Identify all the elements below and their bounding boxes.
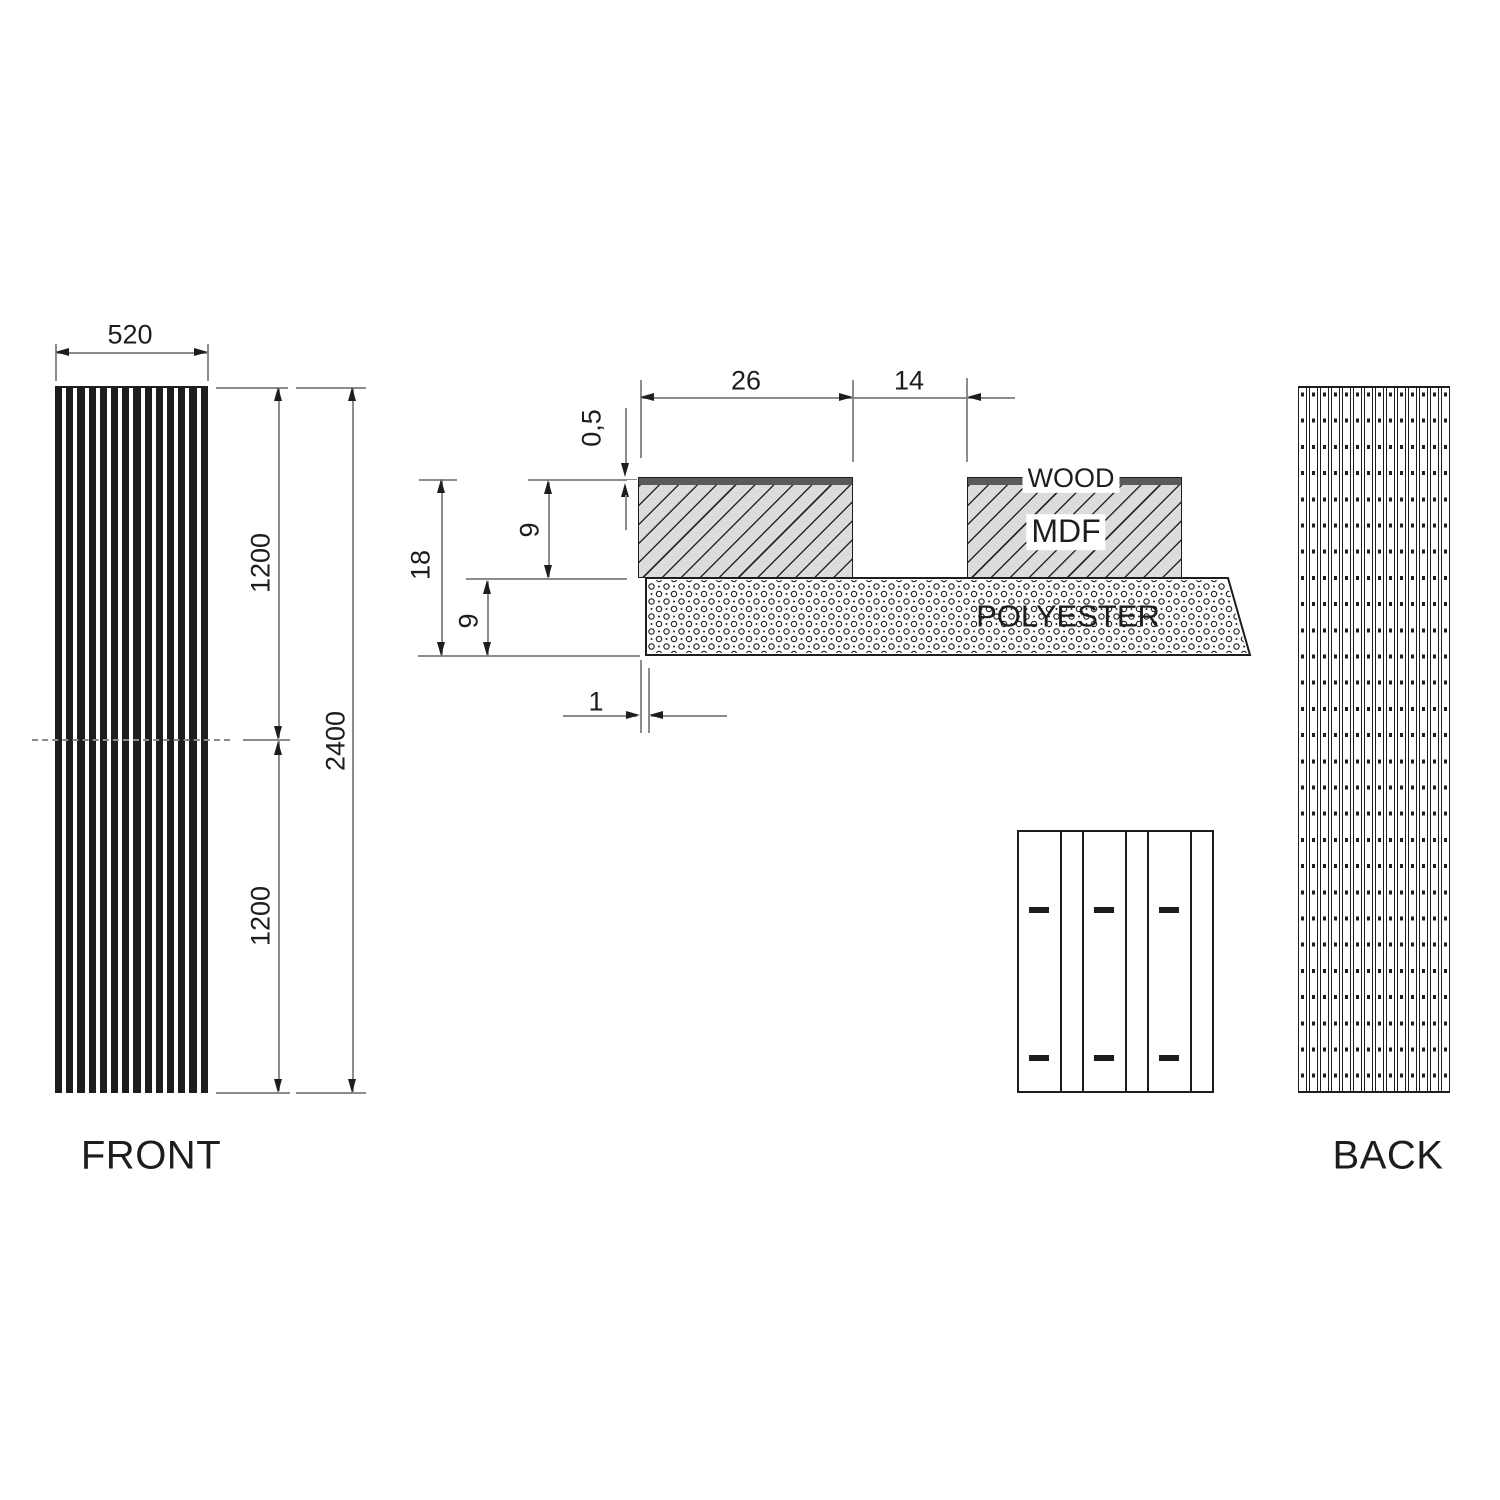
panel-joint-centerline: [32, 739, 230, 741]
detail-groove: [1062, 832, 1084, 1091]
back-slat: [1430, 388, 1439, 1091]
mounting-slot: [1159, 1055, 1179, 1061]
dim-value-slot-width: 14: [894, 366, 924, 397]
dim-arrow: [55, 348, 69, 356]
back-slat: [1419, 388, 1428, 1091]
dim-value-veneer-thickness: 0,5: [577, 409, 608, 447]
mdf-hatch: [639, 485, 852, 577]
ext-line: [966, 378, 968, 462]
mounting-slot: [1094, 1055, 1114, 1061]
wood-veneer: [639, 478, 852, 485]
detail-slat: [1084, 832, 1127, 1091]
dim-arrow: [621, 463, 629, 477]
ext-line: [243, 739, 290, 741]
detail-slat: [1149, 832, 1192, 1091]
dim-line-total-thickness: [441, 481, 443, 655]
polyester-material-label: POLYESTER: [971, 600, 1165, 635]
dim-arrow: [274, 1079, 282, 1093]
back-slat: [1386, 388, 1395, 1091]
ext-line: [556, 479, 637, 480]
dim-line-width: [55, 352, 208, 354]
dim-value-width: 520: [107, 320, 152, 351]
dim-value-lower-segment: 1200: [246, 886, 277, 946]
dim-arrow: [483, 580, 491, 594]
back-slat: [1320, 388, 1329, 1091]
detail-groove: [1192, 832, 1212, 1091]
mdf-material-label: MDF: [1026, 514, 1105, 550]
front-view-label: FRONT: [81, 1134, 221, 1179]
dim-line-slat-and-slot: [640, 397, 1015, 399]
mounting-slot: [1094, 907, 1114, 913]
dim-arrow: [649, 711, 663, 719]
dim-arrow: [194, 348, 208, 356]
dim-line-veneer-thickness: [625, 495, 627, 530]
dim-value-offset: 1: [588, 687, 603, 718]
wood-material-label: WOOD: [1023, 463, 1120, 493]
dim-arrow: [544, 480, 552, 494]
dim-line-total-height: [352, 389, 354, 1092]
back-slat: [1364, 388, 1373, 1091]
dim-arrow: [348, 1079, 356, 1093]
dim-arrow: [967, 393, 981, 401]
back-slat: [1353, 388, 1362, 1091]
mounting-slot: [1159, 907, 1179, 913]
dim-value-mdf-thickness: 9: [515, 522, 546, 537]
back-slat: [1298, 388, 1307, 1091]
mounting-slot: [1029, 1055, 1049, 1061]
back-slat: [1397, 388, 1406, 1091]
detail-groove: [1127, 832, 1149, 1091]
ext-line: [640, 660, 642, 733]
dim-line-mdf-thickness: [548, 482, 550, 577]
back-panel: [1298, 386, 1450, 1093]
dim-value-slat-width: 26: [731, 366, 761, 397]
back-slat: [1342, 388, 1351, 1091]
dim-arrow: [348, 387, 356, 401]
back-slat: [1331, 388, 1340, 1091]
dim-arrow: [274, 726, 282, 740]
dim-arrow: [626, 711, 640, 719]
dim-line-veneer-thickness: [625, 408, 627, 466]
dim-arrow: [483, 642, 491, 656]
back-slat: [1309, 388, 1318, 1091]
mounting-slot: [1029, 907, 1049, 913]
back-slat: [1408, 388, 1417, 1091]
dim-arrow: [274, 741, 282, 755]
ext-line: [640, 380, 642, 458]
ext-line: [648, 668, 650, 733]
detail-panel: [1017, 830, 1214, 1093]
dim-arrow: [437, 479, 445, 493]
technical-drawing-canvas: 520 1200 1200 2400 FRONT: [0, 0, 1500, 1500]
back-view-label: BACK: [1333, 1134, 1444, 1179]
dim-value-total-height: 2400: [321, 711, 352, 771]
dim-arrow: [640, 393, 654, 401]
ext-line: [418, 655, 640, 657]
dim-arrow: [839, 393, 853, 401]
dim-line-upper-segment: [278, 389, 280, 738]
dim-arrow: [274, 387, 282, 401]
dim-value-total-thickness: 18: [406, 550, 437, 580]
dim-value-upper-segment: 1200: [246, 533, 277, 593]
mdf-slat-left: [638, 477, 853, 578]
dim-arrow: [437, 642, 445, 656]
dim-value-polyester-thickness: 9: [454, 613, 485, 628]
back-slat: [1375, 388, 1384, 1091]
dim-arrow: [544, 565, 552, 579]
back-slat: [1441, 388, 1450, 1091]
detail-slat: [1019, 832, 1062, 1091]
dim-line-lower-segment: [278, 741, 280, 1091]
